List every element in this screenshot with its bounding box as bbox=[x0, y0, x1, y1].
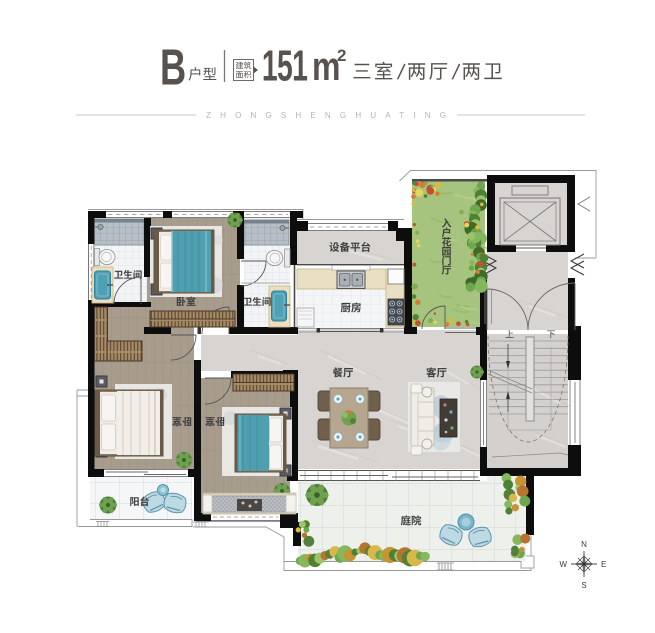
svg-text:151: 151 bbox=[262, 40, 308, 90]
svg-text:ZHONGSHENGHUATING: ZHONGSHENGHUATING bbox=[206, 111, 455, 120]
svg-text:E: E bbox=[601, 560, 606, 569]
svg-text:S: S bbox=[581, 581, 586, 590]
svg-text:W: W bbox=[559, 560, 567, 569]
svg-text:2: 2 bbox=[337, 46, 346, 65]
svg-text:B: B bbox=[160, 40, 186, 97]
svg-text:N: N bbox=[581, 540, 587, 549]
